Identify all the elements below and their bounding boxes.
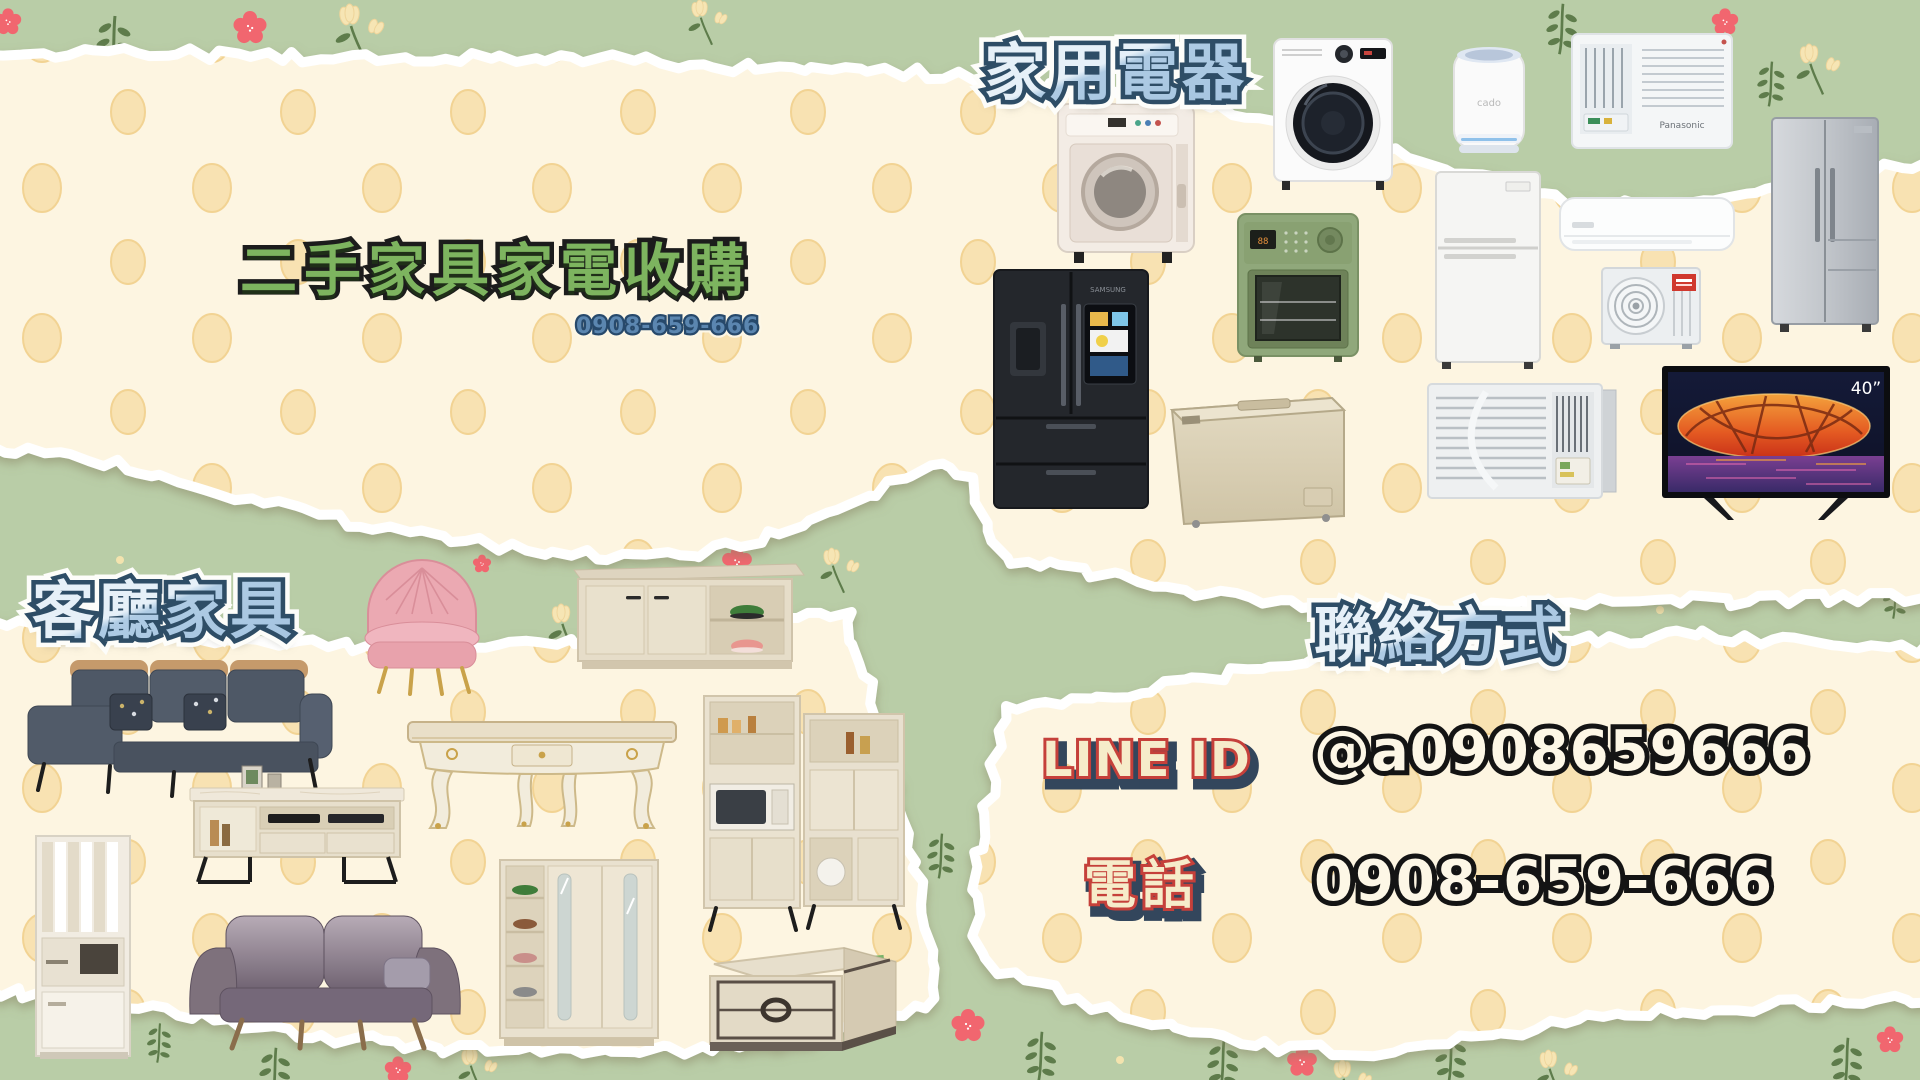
- product-ornate-coffee-table: [400, 712, 684, 836]
- product-ac-outdoor-unit: [1600, 260, 1706, 352]
- product-flat-screen-tv: 40”: [1656, 364, 1896, 524]
- contact-header: 聯絡方式 聯絡方式 聯絡方式: [1314, 606, 1566, 666]
- product-washer-dryer: [1270, 35, 1398, 193]
- product-fridge-top-freezer: [1430, 168, 1546, 370]
- product-room-divider: [22, 830, 144, 1062]
- phone-label: 電話 電話 電話: [1084, 860, 1200, 912]
- panel-contact: [972, 631, 1920, 1057]
- poster-canvas: cado Panasonic SAMSUNG: [0, 0, 1920, 1080]
- product-air-purifier: cado: [1444, 42, 1534, 162]
- product-countertop-oven: 88: [1234, 206, 1362, 364]
- product-fridge-french-door: SAMSUNG: [990, 266, 1152, 516]
- product-pink-armchair: [346, 548, 498, 696]
- product-tv-stand: [180, 780, 414, 886]
- svg-text:cado: cado: [1477, 98, 1501, 109]
- product-sectional-sofa: [14, 650, 340, 800]
- product-chest-freezer: [1166, 376, 1356, 530]
- product-storage-coffee-table: [694, 938, 910, 1056]
- line-id-value: @a0908659666 @a0908659666: [1314, 724, 1809, 780]
- svg-text:SAMSUNG: SAMSUNG: [1090, 286, 1126, 294]
- furniture-header: 客廳家具 客廳家具 客廳家具: [32, 580, 296, 642]
- product-loveseat-sofa: [180, 902, 470, 1050]
- svg-text:Panasonic: Panasonic: [1659, 121, 1704, 131]
- phone-value: 0908-659-666 0908-659-666: [1314, 854, 1774, 910]
- title-phone-number: 0908-659-666 0908-659-666 0908-659-666: [576, 316, 759, 338]
- product-fridge-side-by-side: [1766, 112, 1884, 334]
- line-id-label: LINE ID LINE ID LINE ID: [1042, 736, 1252, 784]
- product-clothes-dryer: [1050, 100, 1202, 266]
- appliances-header: 家用電器 家用電器 家用電器: [984, 42, 1248, 104]
- product-kitchen-hutch: [694, 688, 916, 934]
- product-window-ac-panasonic: Panasonic: [1570, 28, 1736, 156]
- product-window-ac-teco: [1424, 376, 1620, 506]
- product-shoe-bench: [560, 554, 810, 676]
- poster-title: 二手家具家電收購 二手家具家電收購: [240, 243, 752, 300]
- svg-text:40”: 40”: [1851, 379, 1881, 399]
- svg-text:88: 88: [1258, 237, 1269, 247]
- product-sliding-shoe-cabinet: [492, 854, 670, 1050]
- product-split-ac-indoor: [1558, 194, 1736, 260]
